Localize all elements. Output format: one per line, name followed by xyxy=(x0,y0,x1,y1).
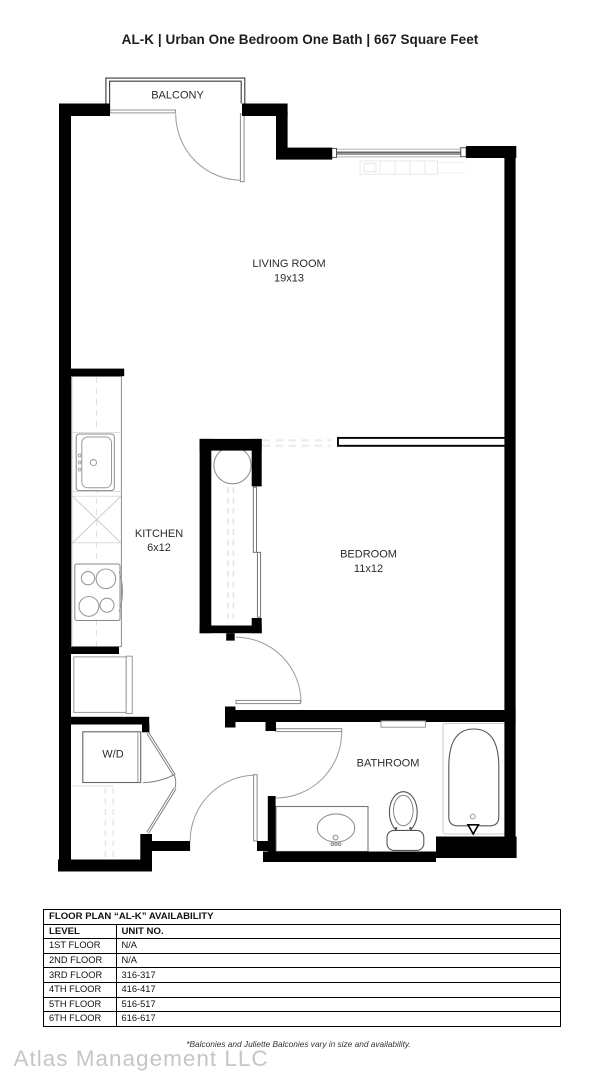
svg-text:W/D: W/D xyxy=(102,749,123,761)
svg-text:6x12: 6x12 xyxy=(147,542,171,554)
svg-text:BATHROOM: BATHROOM xyxy=(357,757,420,769)
svg-text:BALCONY: BALCONY xyxy=(151,90,204,102)
svg-text:11x12: 11x12 xyxy=(354,563,383,575)
svg-text:19x13: 19x13 xyxy=(274,273,304,285)
svg-text:KITCHEN: KITCHEN xyxy=(135,528,183,540)
svg-text:BEDROOM: BEDROOM xyxy=(340,549,397,561)
svg-text:LIVING ROOM: LIVING ROOM xyxy=(252,258,325,270)
